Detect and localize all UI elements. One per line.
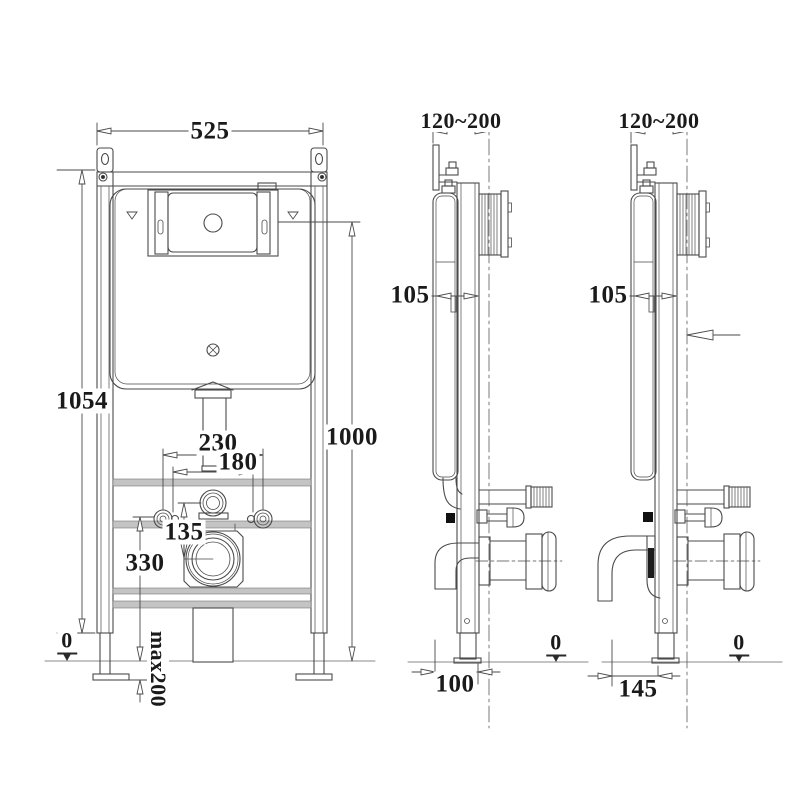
flush-conduit-right — [677, 191, 710, 257]
wall-surface-arrow — [687, 330, 740, 340]
cistern-screw — [207, 344, 219, 356]
frame-column-right — [655, 183, 677, 633]
fixing-bolt-side-right — [675, 508, 722, 527]
dim-outlet-height-label: 330 — [124, 551, 167, 576]
frame-column — [457, 183, 479, 633]
cistern-profile — [433, 180, 458, 480]
foot-adjust-label: max200 — [147, 629, 169, 709]
wall-range-right-label: 120~200 — [617, 110, 702, 132]
supply-stub-right — [677, 486, 750, 508]
flush-button — [204, 214, 222, 232]
cross-rails — [113, 479, 311, 608]
fixing-bolt-side — [477, 508, 524, 527]
dim-frame-width-label: 525 — [189, 119, 232, 144]
dim-inlet-offset-label: 135 — [163, 520, 206, 545]
waste-elbow-right — [598, 536, 660, 601]
cistern — [110, 189, 315, 389]
access-panel — [148, 183, 278, 256]
datum-zero-middle-label: 0 — [546, 632, 566, 657]
supply-connector — [199, 490, 228, 519]
side-foot — [454, 633, 481, 663]
datum-zero-front-label: 0 — [57, 630, 77, 655]
water-level-icon — [127, 212, 298, 219]
flush-conduit — [479, 191, 512, 257]
dim-frame-height-label: 1054 — [54, 389, 110, 414]
supply-stub — [479, 486, 552, 508]
fixing-block — [446, 513, 455, 523]
datum-zero-right-label: 0 — [729, 632, 749, 657]
dim-drain-spacing-label: 180 — [217, 450, 260, 475]
side-foot-right — [652, 633, 679, 663]
frame-depth-middle-label: 105 — [389, 283, 432, 308]
fixing-block-right — [643, 512, 653, 522]
floor-offset-middle-label: 100 — [434, 672, 477, 697]
outlet-box — [193, 608, 233, 662]
frame-depth-right-label: 105 — [587, 283, 630, 308]
side-view-right — [588, 112, 782, 728]
floor-offset-right-label: 145 — [617, 677, 660, 702]
dim-flush-height-label: 1000 — [324, 425, 380, 450]
drawing-canvas: 525 1054 1000 230 180 135 330 0 max200 1… — [0, 0, 800, 800]
cistern-profile-right — [631, 180, 656, 480]
mounting-tabs — [97, 148, 327, 172]
wall-range-middle-label: 120~200 — [419, 110, 504, 132]
